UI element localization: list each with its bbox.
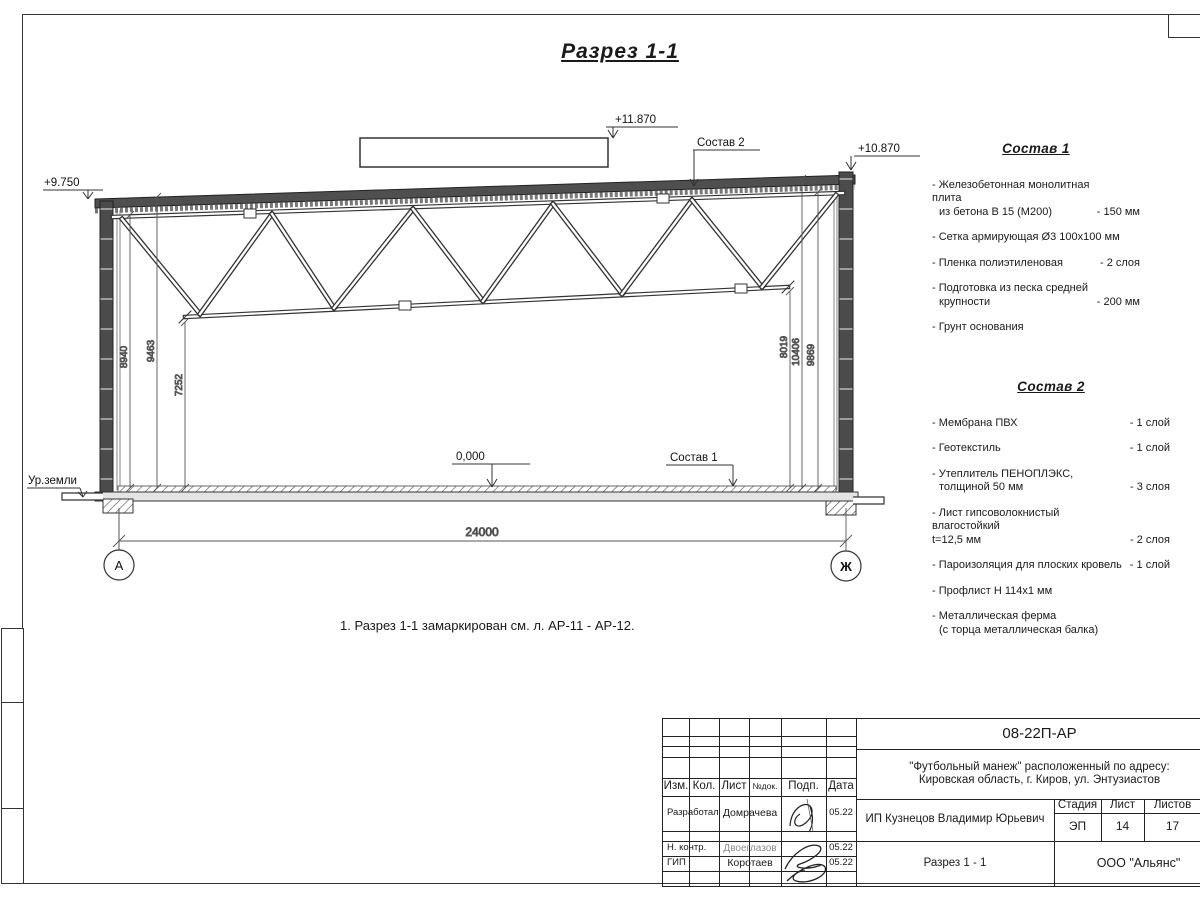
tb-sheet-name: Разрез 1 - 1 [856,841,1054,886]
material-item: - Грунт основания [932,321,1140,335]
tb-stage-value: ЭП [1054,813,1101,841]
roof-superstructure [360,138,608,167]
column-axes: А Ж [104,508,861,581]
material-item: - Утеплитель ПЕНОПЛЭКС,толщиной 50 мм - … [932,468,1170,495]
dim-span-label: 24000 [465,525,499,539]
signature-korotaev [785,845,826,882]
material-qty: - 1 слой [1124,559,1170,573]
material-name: - Профлист Н 114х1 мм [932,585,1170,599]
material-name-2: t=12,5 мм [932,534,1124,548]
svg-text:Ур.земли: Ур.земли [28,475,77,487]
material-item: - Пленка полиэтиленовая - 2 слоя [932,257,1140,271]
material-qty: - 3 слоя [1124,481,1170,495]
svg-text:0,000: 0,000 [456,451,485,463]
dim-label: 8940 [119,345,130,368]
material-name: - Геотекстиль [932,442,1124,456]
tb-sheets-label: Листов [1144,799,1200,813]
sostav1-title: Состав 1 [932,142,1140,156]
material-name: - Подготовка из песка средней [932,282,1091,296]
material-qty: - 1 слой [1124,417,1170,431]
material-qty: - 1 слой [1124,442,1170,456]
leader-sostav1: Состав 1 [666,452,737,486]
signatures [663,719,863,886]
dim-label: 7252 [174,373,185,396]
material-name-2: крупности [932,296,1091,310]
svg-text:+9.750: +9.750 [44,177,80,189]
material-item: - Лист гипсоволокнистый влагостойкийt=12… [932,507,1170,548]
sostav2-panel: Состав 2 - Мембрана ПВХ - 1 слой - Геоте… [932,380,1170,649]
margin-box-3 [1,808,24,884]
material-name: - Пленка полиэтиленовая [932,257,1094,271]
roof-truss [113,193,843,323]
material-name: - Грунт основания [932,321,1140,335]
svg-text:+10.870: +10.870 [858,143,900,155]
dim-label: 9463 [146,339,157,362]
material-item: - Профлист Н 114х1 мм [932,585,1170,599]
svg-text:+11.870: +11.870 [615,114,656,126]
material-qty: - 150 мм [1091,206,1140,220]
material-name: - Железобетонная монолитная плита [932,179,1091,206]
tb-client: ИП Кузнецов Владимир Юрьевич [856,799,1054,841]
tb-company: ООО "Альянс" [1054,841,1200,886]
title-block: Изм. Кол. Лист №док. Подп. Дата Разработ… [662,718,1200,887]
tb-project-line1: "Футбольный манеж" расположенный по адре… [909,761,1170,774]
tb-doc-number: 08-22П-АР [856,719,1200,749]
material-item: - Подготовка из песка среднейкрупности -… [932,282,1140,309]
svg-text:Состав 1: Состав 1 [670,452,718,464]
axis-label-right: Ж [839,559,852,574]
material-name-2: (с торца металлическая балка) [932,624,1170,638]
dim-label: 10406 [791,338,802,366]
tb-sheets-value: 17 [1144,813,1200,841]
material-name-2: из бетона В 15 (М200) [932,206,1091,220]
material-item: - Мембрана ПВХ - 1 слой [932,417,1170,431]
material-name: - Лист гипсоволокнистый влагостойкий [932,507,1124,534]
sostav1-panel: Состав 1 - Железобетонная монолитная пли… [932,142,1140,347]
material-item: - Металлическая ферма(с торца металличес… [932,610,1170,637]
axis-label-left: А [115,558,124,573]
elevation-mark-parapet-right: +10.870 [846,143,920,170]
tb-stage-label: Стадия [1054,799,1101,813]
elevation-mark-box-top: +11.870 [606,114,678,138]
material-name-2: толщиной 50 мм [932,481,1124,495]
material-name: - Сетка армирующая Ø3 100х100 мм [932,231,1140,245]
dim-label: 8019 [779,335,790,358]
tb-sheet-value: 14 [1101,813,1144,841]
material-name: - Мембрана ПВХ [932,417,1124,431]
material-name: - Пароизоляция для плоских кровель [932,559,1124,573]
tb-project: "Футбольный манеж" расположенный по адре… [856,749,1200,799]
tb-project-line2: Кировская область, г. Киров, ул. Энтузиа… [919,774,1160,787]
material-qty: - 2 слоя [1094,257,1140,271]
sostav2-title: Состав 2 [932,380,1170,394]
material-item: - Геотекстиль - 1 слой [932,442,1170,456]
svg-text:Состав 2: Состав 2 [697,137,745,149]
dim-label: 9869 [806,343,817,366]
material-name: - Утеплитель ПЕНОПЛЭКС, [932,468,1124,482]
elevation-mark-roof-left: +9.750 [43,177,103,199]
tb-sheet-label: Лист [1101,799,1144,813]
elevation-mark-floor: 0,000 [452,451,530,487]
material-qty: - 200 мм [1091,296,1140,310]
material-item: - Пароизоляция для плоских кровель - 1 с… [932,559,1170,573]
drawing-note: 1. Разрез 1-1 замаркирован см. л. АР-11 … [340,618,635,633]
material-item: - Сетка армирующая Ø3 100х100 мм [932,231,1140,245]
material-name: - Металлическая ферма [932,610,1170,624]
material-item: - Железобетонная монолитная плитаиз бето… [932,179,1140,220]
material-qty: - 2 слоя [1124,534,1170,548]
margin-box-2 [1,702,24,810]
